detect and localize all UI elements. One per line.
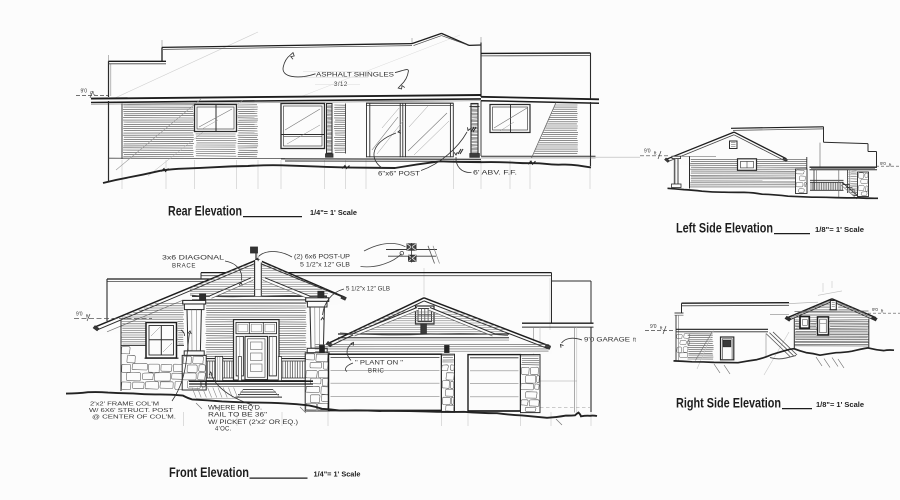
- svg-text:9'0: 9'0: [76, 312, 83, 318]
- svg-text:RAIL TO BE 36": RAIL TO BE 36": [208, 413, 267, 419]
- svg-text:1/4"= 1' Scale: 1/4"= 1' Scale: [310, 208, 357, 217]
- svg-text:9'0 GARAGE: 9'0 GARAGE: [584, 338, 630, 344]
- svg-text:@ CENTER OF COL'M.: @ CENTER OF COL'M.: [92, 415, 176, 421]
- svg-text:W/ 6X6' STRUCT. POST: W/ 6X6' STRUCT. POST: [89, 408, 174, 414]
- svg-text:9'0: 9'0: [81, 89, 88, 95]
- svg-text:5 1/2"x 12" GLB: 5 1/2"x 12" GLB: [300, 263, 350, 269]
- svg-text:2'x2' FRAME COL'M: 2'x2' FRAME COL'M: [90, 402, 159, 408]
- svg-text:4'OC.: 4'OC.: [215, 427, 232, 433]
- svg-text:3/12: 3/12: [334, 82, 348, 88]
- svg-text:Left Side Elevation: Left Side Elevation: [676, 220, 773, 236]
- svg-text:(2) 6x6 POST-UP: (2) 6x6 POST-UP: [294, 254, 350, 261]
- svg-text:WHERE REQ'D.: WHERE REQ'D.: [208, 406, 262, 412]
- svg-text:9'0: 9'0: [880, 161, 886, 166]
- svg-text:1/8"= 1' Scale: 1/8"= 1' Scale: [816, 400, 864, 409]
- svg-text:Rear Elevation: Rear Elevation: [168, 203, 242, 219]
- svg-text:" PLANT ON ": " PLANT ON ": [355, 361, 403, 367]
- svg-text:5 1/2"x 12" GLB: 5 1/2"x 12" GLB: [346, 287, 390, 293]
- svg-text:W/ PICKET (2'x2' OR EQ.): W/ PICKET (2'x2' OR EQ.): [208, 420, 298, 426]
- svg-text:9'0: 9'0: [872, 307, 878, 312]
- svg-text:3x6 DIAGONAL: 3x6 DIAGONAL: [162, 255, 225, 262]
- svg-text:Front Elevation: Front Elevation: [169, 464, 249, 480]
- svg-text:9'0: 9'0: [650, 324, 657, 330]
- svg-text:6"x6" POST: 6"x6" POST: [378, 171, 420, 178]
- svg-text:9'0: 9'0: [644, 149, 651, 155]
- svg-text:6' ABV. F.F.: 6' ABV. F.F.: [473, 170, 517, 177]
- svg-text:1/8"= 1' Scale: 1/8"= 1' Scale: [815, 225, 864, 234]
- svg-text:1/4"= 1' Scale: 1/4"= 1' Scale: [314, 470, 361, 479]
- svg-text:BRIC: BRIC: [368, 369, 385, 375]
- svg-text:Right Side Elevation: Right Side Elevation: [676, 395, 781, 411]
- svg-text:BRACE: BRACE: [172, 263, 196, 270]
